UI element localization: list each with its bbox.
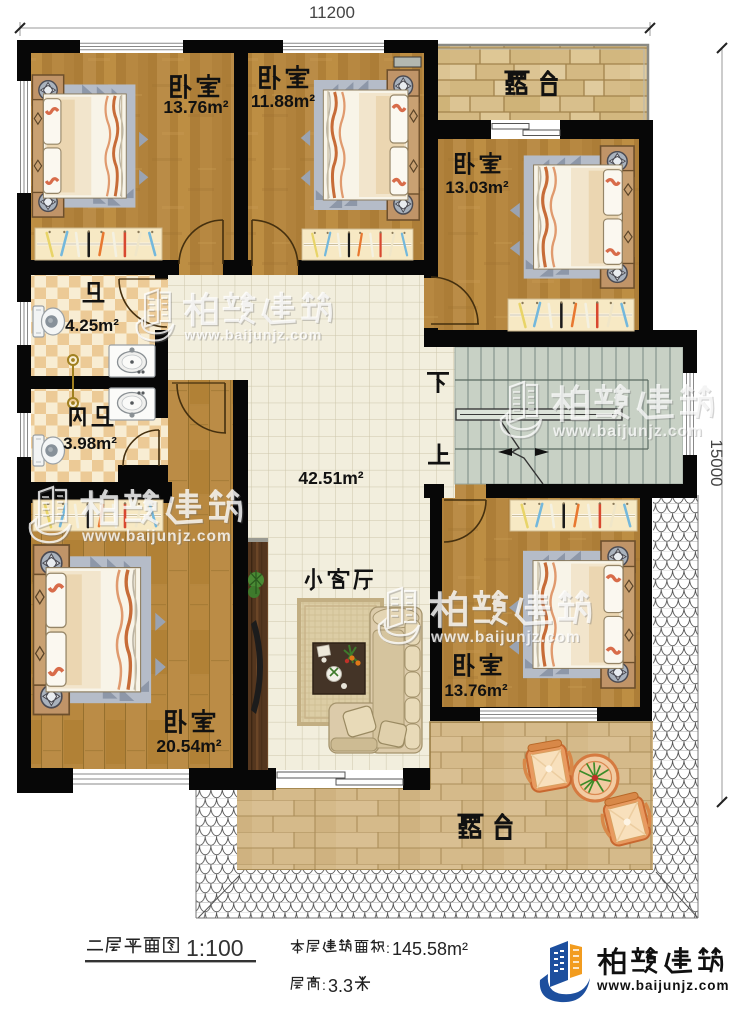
svg-text:20.54m²: 20.54m² <box>156 736 221 756</box>
svg-text:11.88m²: 11.88m² <box>251 91 315 111</box>
svg-text:13.76m²: 13.76m² <box>163 97 228 117</box>
svg-text::: : <box>386 940 390 956</box>
svg-text:145.58m²: 145.58m² <box>392 939 468 959</box>
svg-text:42.51m²: 42.51m² <box>298 468 363 488</box>
svg-text:www.baijunjz.com: www.baijunjz.com <box>596 978 730 993</box>
svg-text:3.98m²: 3.98m² <box>63 434 117 453</box>
svg-text:11200: 11200 <box>309 3 355 22</box>
svg-text:4.25m²: 4.25m² <box>65 316 119 335</box>
svg-text:1:100: 1:100 <box>186 935 244 961</box>
svg-text:3.3: 3.3 <box>328 976 353 996</box>
svg-text::: : <box>322 977 326 993</box>
svg-text:15000: 15000 <box>707 439 726 486</box>
svg-text:13.03m²: 13.03m² <box>445 178 509 197</box>
svg-text:13.76m²: 13.76m² <box>444 681 508 700</box>
